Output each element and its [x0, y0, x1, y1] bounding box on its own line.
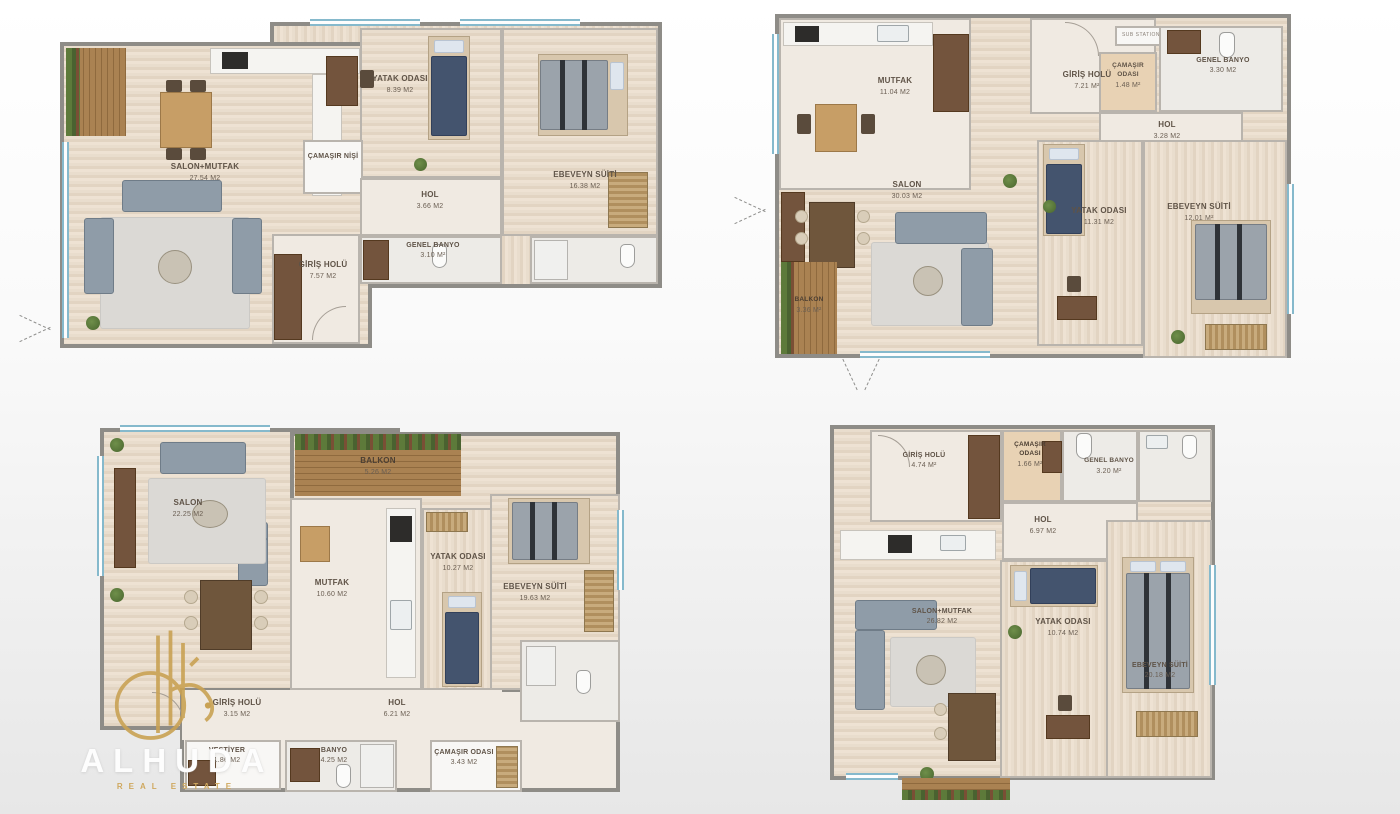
plan3-wardrobe — [584, 570, 614, 632]
room-name: HOL — [1158, 120, 1176, 129]
plan2-kitchen-table — [815, 104, 857, 152]
plan4-sink — [1146, 435, 1168, 449]
plan1-toilet2 — [620, 244, 635, 268]
plan1-armchair-right — [232, 218, 262, 294]
plan1-entry-arrow — [19, 327, 50, 342]
plan3-window-top — [120, 425, 270, 432]
room-name: SALON+MUTFAK — [912, 608, 972, 615]
plan3-chair — [254, 616, 268, 630]
brand-tagline: REAL ESTATE — [62, 782, 292, 791]
room-label: EBEVEYN SÜİTİ 19.63 m2 — [492, 582, 578, 603]
plan4-balcony-plants — [902, 790, 1010, 800]
plan1-chair — [166, 148, 182, 160]
plan2-bed-stripe — [1237, 224, 1242, 300]
room-name: EBEVEYN SÜİTİ — [1132, 662, 1188, 669]
plan2-plant — [1043, 200, 1056, 213]
plan3-bed-stripe — [552, 502, 557, 560]
plan2-chair — [797, 114, 811, 134]
room-name: ÇAMAŞIR NİŞİ — [308, 153, 359, 160]
plan1-shower — [534, 240, 568, 280]
room-label: BALKON 5.26 m2 — [338, 456, 418, 477]
plan1-dining-table — [160, 92, 212, 148]
room-area: 22.25 m2 — [152, 510, 224, 519]
plan3-cooktop — [390, 516, 412, 542]
room-name: HOL — [1034, 515, 1052, 524]
room-area: 10.74 m2 — [1018, 629, 1108, 638]
plan2-sofa-l — [961, 248, 993, 326]
plan3-tv-unit — [114, 468, 136, 568]
room-name: SALON+MUTFAK — [171, 162, 239, 171]
room-name: YATAK ODASI — [1035, 617, 1090, 626]
room-label: EBEVEYN SÜİTİ 16.38 m2 — [530, 170, 640, 191]
room-label: GENEL BANYO 3.20 m² — [1080, 457, 1138, 476]
room-area: 3.10 m² — [388, 251, 478, 260]
room-name: HOL — [421, 190, 439, 199]
plan2-tv-unit — [781, 192, 805, 262]
plan1-chair — [190, 148, 206, 160]
plan3-toilet — [576, 670, 591, 694]
plan1-laundry-niche — [303, 140, 363, 194]
room-label: BANYO 4.25 m2 — [304, 746, 364, 766]
plan4-sofa-l — [855, 630, 885, 710]
room-label: HOL 6.21 m2 — [362, 698, 432, 719]
plan3-balcony-plants — [295, 434, 461, 450]
brand-name: ALHUDA — [62, 742, 292, 780]
room-area: 3.20 m² — [1080, 467, 1138, 476]
plan4-desk-chair — [1058, 695, 1072, 711]
plan4-entry-cabinet — [968, 435, 1000, 519]
room-area: 16.38 m2 — [530, 182, 640, 191]
room-label: YATAK ODASI 10.74 m2 — [1018, 617, 1108, 638]
room-label: ÇAMAŞIR ODASI 1.48 m² — [1101, 62, 1155, 90]
plan2-chair — [857, 232, 870, 245]
plan4-chair — [934, 727, 947, 740]
plan4-dining-table — [948, 693, 996, 761]
room-name: ÇAMAŞIR ODASI — [1112, 62, 1144, 78]
room-name: MUTFAK — [315, 578, 350, 587]
room-area: 1.66 m² — [1004, 460, 1056, 469]
plan1-pillow — [610, 62, 624, 90]
plan2-dining-table — [809, 202, 855, 268]
plan4-wardrobe — [1136, 711, 1198, 737]
plan3-single-bed-pillow — [448, 596, 476, 608]
plan2-vanity — [1167, 30, 1201, 54]
room-area: 3.36 m² — [785, 306, 833, 315]
room-area: 7.57 m2 — [278, 272, 368, 281]
room-label: YATAK ODASI 10.27 m2 — [422, 552, 494, 573]
plan2-coffee-table — [913, 266, 943, 296]
room-area: 19.63 m2 — [492, 594, 578, 603]
plan3-kitchen-table — [300, 526, 330, 562]
room-area: 10.27 m2 — [422, 564, 494, 573]
room-area: 5.26 m2 — [338, 468, 418, 477]
room-name: YATAK ODASI — [1071, 206, 1126, 215]
plan4-kitchen-counter — [840, 530, 996, 560]
plan2-sink — [877, 25, 909, 42]
room-area: 30.03 m2 — [867, 192, 947, 201]
plan1-desk — [326, 56, 358, 106]
plan3-shower — [526, 646, 556, 686]
room-label: GENEL BANYO 3.10 m² — [388, 241, 478, 261]
plan3-bath-toilet — [336, 764, 351, 788]
plan4-sink2 — [940, 535, 966, 551]
room-name: GENEL BANYO — [406, 242, 459, 249]
plan3-bath-shower — [360, 744, 394, 788]
room-name: SALON — [893, 180, 922, 189]
room-area: 3.43 m2 — [434, 758, 494, 767]
plan1-window-top2 — [460, 19, 580, 26]
plan3-laundry-cabinet — [496, 746, 518, 788]
plan2-chair — [857, 210, 870, 223]
plan3-single-bed-blanket — [445, 612, 479, 684]
room-label: GİRİŞ HOLÜ 7.57 m2 — [278, 260, 368, 281]
room-area: 3.28 m2 — [1127, 132, 1207, 141]
plan4-desk — [1046, 715, 1090, 739]
plan1-plant — [86, 316, 100, 330]
plan3-chair — [184, 590, 198, 604]
room-area: 20.18 m2 — [1112, 671, 1208, 680]
plan3-sofa — [160, 442, 246, 474]
plan4-chair — [934, 703, 947, 716]
room-name: BALKON — [794, 296, 823, 303]
plan1-single-bed-blanket — [431, 56, 467, 136]
plan1-chair — [166, 80, 182, 92]
room-name: EBEVEYN SÜİTİ — [553, 170, 617, 179]
room-label: ÇAMAŞIR NİŞİ — [307, 152, 359, 161]
room-area: 10.60 m2 — [296, 590, 368, 599]
plan2-window-right — [1287, 184, 1294, 314]
room-area: 11.31 m2 — [1063, 218, 1135, 227]
floor-plans-canvas: SALON+MUTFAK 27.54 m2 YATAK ODASI 8.39 m… — [0, 0, 1400, 814]
plan4-pillow — [1130, 561, 1156, 572]
alhuda-logo-emblem — [108, 628, 238, 753]
plan1-plant — [414, 158, 427, 171]
plan2-entry-arrow — [734, 209, 765, 224]
plan4-single-bed-blanket — [1030, 568, 1096, 604]
plan2-plant — [1171, 330, 1185, 344]
plan1-single-bed-pillow — [434, 40, 464, 53]
room-label: SALON 22.25 m2 — [152, 498, 224, 519]
room-name: BANYO — [321, 747, 347, 754]
room-label: YATAK ODASI 11.31 m2 — [1063, 206, 1135, 227]
plan2-sofa — [895, 212, 987, 244]
room-label: GİRİŞ HOLÜ 4.74 m² — [876, 451, 972, 471]
plan2-single-bed-pillow — [1049, 148, 1079, 160]
plan1-sofa — [122, 180, 222, 212]
plan3-window-right — [617, 510, 624, 590]
plan2-tall-cabinet — [933, 34, 969, 112]
plan1-window-top — [310, 19, 420, 26]
room-label: SALON 30.03 m2 — [867, 180, 947, 201]
room-name: GENEL BANYO — [1084, 457, 1134, 464]
plan3-bedroom-desk — [426, 512, 468, 532]
plan1-balcony-plants — [66, 48, 80, 136]
plan4-toilet — [1076, 433, 1092, 459]
room-area: 8.39 m2 — [360, 86, 440, 95]
room-label: HOL 3.28 m2 — [1127, 120, 1207, 141]
room-label: EBEVEYN SÜİTİ 12.01 m² — [1149, 202, 1249, 223]
room-area: 4.74 m² — [876, 461, 972, 470]
room-name: ÇAMAŞIR ODASI — [1014, 441, 1046, 457]
room-label: HOL 6.97 m2 — [1008, 515, 1078, 536]
floor-plan-top-right: SUB STATION — [775, 14, 1291, 362]
room-area: 26.82 m2 — [890, 617, 994, 626]
room-name: SALON — [174, 498, 203, 507]
plan3-chair — [254, 590, 268, 604]
plan4-cooktop — [888, 535, 912, 553]
room-label: SALON+MUTFAK 26.82 m2 — [890, 607, 994, 627]
plan3-sink — [390, 600, 412, 630]
plan2-cooktop — [795, 26, 819, 42]
room-area: 3.66 m2 — [390, 202, 470, 211]
room-area: 11.04 m2 — [845, 88, 945, 97]
room-name: YATAK ODASI — [372, 74, 427, 83]
plan3-plant — [110, 438, 124, 452]
room-area: 6.97 m2 — [1008, 527, 1078, 536]
floor-plan-bottom-right: GİRİŞ HOLÜ 4.74 m² ÇAMAŞIR ODASI 1.66 m²… — [830, 415, 1215, 800]
plan2-chair — [795, 210, 808, 223]
room-area: 3.30 m2 — [1175, 66, 1271, 75]
room-name: GİRİŞ HOLÜ — [903, 452, 946, 459]
plan3-plant — [110, 588, 124, 602]
floor-plan-top-left: SALON+MUTFAK 27.54 m2 YATAK ODASI 8.39 m… — [60, 22, 662, 348]
plan3-window-left — [97, 456, 104, 576]
room-name: EBEVEYN SÜİTİ — [1167, 202, 1231, 211]
room-area: 27.54 m2 — [150, 174, 260, 183]
room-area: 1.48 m² — [1101, 81, 1155, 90]
plan2-chair — [795, 232, 808, 245]
room-name: GİRİŞ HOLÜ — [299, 260, 348, 269]
room-label: YATAK ODASI 8.39 m2 — [360, 74, 440, 95]
room-area: 12.01 m² — [1149, 214, 1249, 223]
plan2-wardrobe — [1205, 324, 1267, 350]
room-label: MUTFAK 11.04 m2 — [845, 76, 945, 97]
plan1-bed-stripe — [582, 60, 587, 130]
room-area: 6.21 m2 — [362, 710, 432, 719]
plan1-cooktop — [222, 52, 248, 69]
room-label: EBEVEYN SÜİTİ 20.18 m2 — [1112, 661, 1208, 681]
plan1-double-bed-blanket — [540, 60, 608, 130]
room-label: ÇAMAŞIR ODASI 3.43 m2 — [434, 748, 494, 768]
room-name: ÇAMAŞIR ODASI — [434, 749, 493, 756]
room-name: YATAK ODASI — [430, 552, 485, 561]
plan2-desk-chair — [1067, 276, 1081, 292]
plan1-bed-stripe — [560, 60, 565, 130]
plan1-window-left — [62, 142, 69, 338]
plan3-double-bed-blanket — [512, 502, 578, 560]
room-label: GENEL BANYO 3.30 m2 — [1175, 56, 1271, 76]
plan2-window-left — [772, 34, 779, 154]
plan4-toilet2 — [1182, 435, 1197, 459]
plan4-single-bed-pillow — [1014, 571, 1027, 601]
room-label: ÇAMAŞIR ODASI 1.66 m² — [1004, 441, 1056, 469]
room-name: EBEVEYN SÜİTİ — [503, 582, 567, 591]
plan4-pillow — [1160, 561, 1186, 572]
plan1-chair — [190, 80, 206, 92]
room-label: MUTFAK 10.60 m2 — [296, 578, 368, 599]
plan3-bed-stripe — [530, 502, 535, 560]
room-label: SALON+MUTFAK 27.54 m2 — [150, 162, 260, 183]
room-name: HOL — [388, 698, 406, 707]
plan2-entry-arrow — [842, 359, 857, 390]
room-area: 4.25 m2 — [304, 756, 364, 765]
room-label: BALKON 3.36 m² — [785, 296, 833, 315]
plan4-window-right — [1209, 565, 1216, 685]
room-label: HOL 3.66 m2 — [390, 190, 470, 211]
plan2-desk — [1057, 296, 1097, 320]
room-name: MUTFAK — [878, 76, 913, 85]
plan2-chair — [861, 114, 875, 134]
plan1-armchair-left — [84, 218, 114, 294]
plan2-toilet — [1219, 32, 1235, 58]
plan2-window-bottom — [860, 351, 990, 358]
room-name: GENEL BANYO — [1196, 57, 1249, 64]
room-name: BALKON — [360, 456, 395, 465]
plan2-plant — [1003, 174, 1017, 188]
plan1-coffee-table — [158, 250, 192, 284]
plan4-coffee-table — [916, 655, 946, 685]
plan2-entry-arrow — [864, 359, 879, 390]
plan4-window-bottom — [846, 773, 898, 780]
plan2-bed-stripe — [1215, 224, 1220, 300]
plan2-double-bed-blanket — [1195, 224, 1267, 300]
